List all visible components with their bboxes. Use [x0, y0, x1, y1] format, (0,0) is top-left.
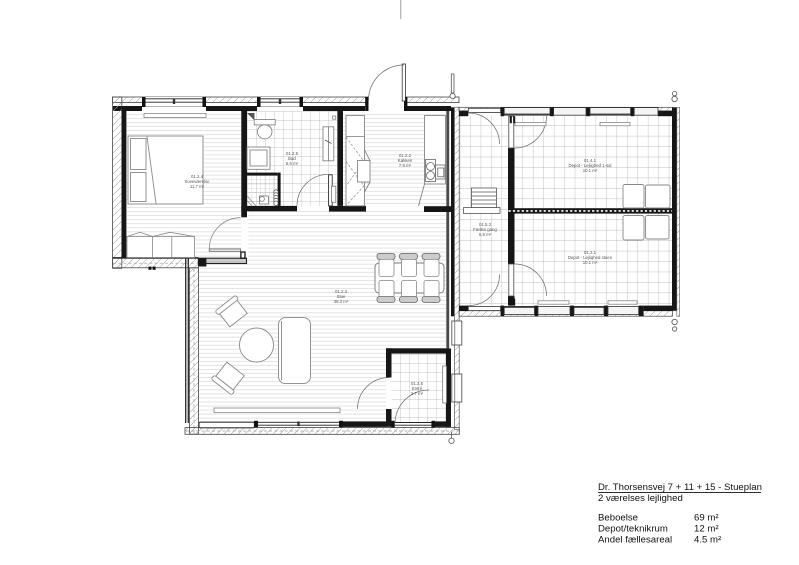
svg-text:12 m²: 12 m² [694, 524, 719, 535]
svg-text:6.5 m²: 6.5 m² [479, 232, 492, 237]
svg-text:38.3 m²: 38.3 m² [334, 299, 349, 304]
svg-text:2 værelses lejlighed: 2 værelses lejlighed [598, 493, 683, 504]
svg-text:Depot/teknikrum: Depot/teknikrum [598, 524, 668, 535]
svg-text:7.9 m²: 7.9 m² [399, 163, 412, 168]
svg-text:69 m²: 69 m² [694, 513, 719, 524]
svg-text:4.5 m²: 4.5 m² [694, 535, 722, 546]
svg-text:Andel fællesareal: Andel fællesareal [598, 535, 672, 546]
svg-text:11.7 m²: 11.7 m² [190, 184, 205, 189]
svg-text:10.1 m²: 10.1 m² [583, 260, 598, 265]
svg-text:Dr. Thorsensvej 7 + 11 + 15 -: Dr. Thorsensvej 7 + 11 + 15 - Stueplan [598, 482, 762, 493]
svg-text:5.6 m²: 5.6 m² [286, 161, 299, 166]
svg-text:Beboelse: Beboelse [598, 513, 638, 524]
svg-text:10.1 m²: 10.1 m² [583, 168, 598, 173]
svg-text:2.7 m²: 2.7 m² [411, 391, 424, 396]
